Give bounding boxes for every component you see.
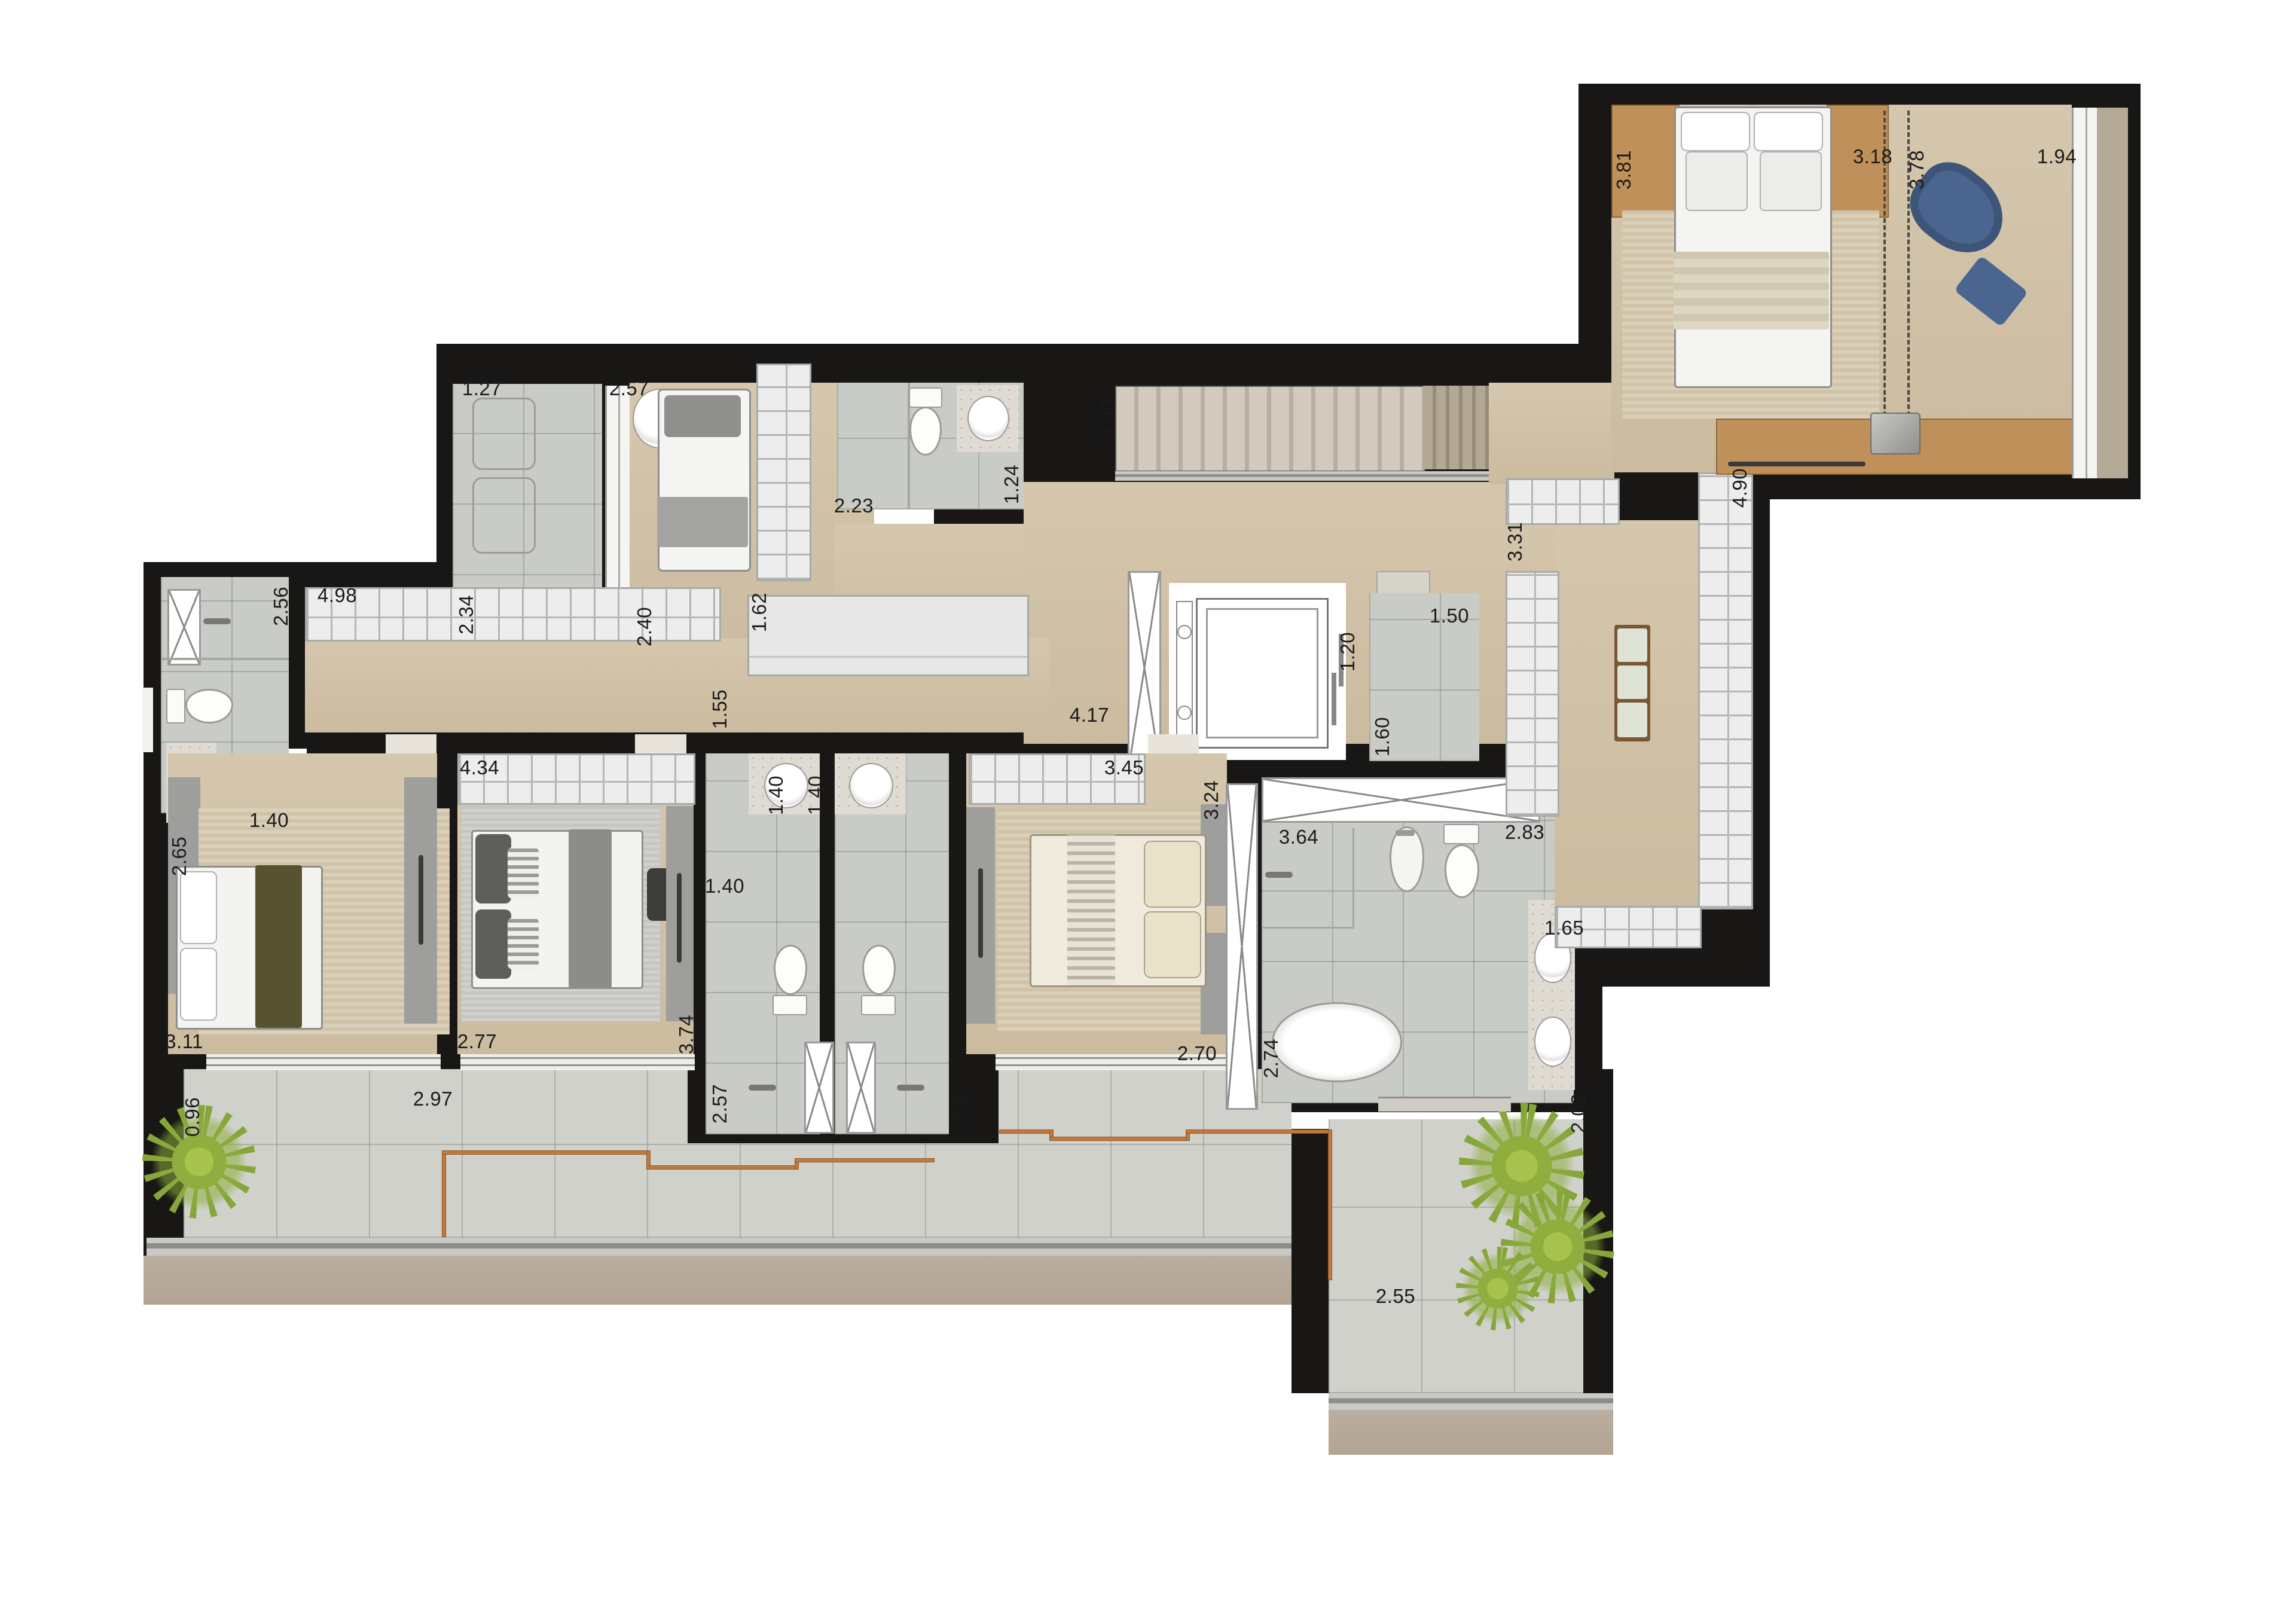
dimension-label: 4.90 (1729, 468, 1751, 508)
dimension-label: 2.02 (1567, 1094, 1590, 1133)
dimension-label: 1.62 (748, 593, 771, 632)
dimension-label: 2.57 (949, 1084, 972, 1124)
dimension-label: 2.65 (168, 837, 191, 876)
dimension-label: 1.50 (1430, 605, 1469, 627)
dimension-label: 2.57 (709, 1084, 731, 1124)
dimension-label: 4.98 (317, 584, 357, 607)
dimension-label: 1.65 (1544, 917, 1584, 939)
dimension-label: 1.20 (1336, 632, 1359, 671)
dimension-label: 1.94 (2037, 145, 2077, 168)
dimension-label: 1.24 (1000, 465, 1023, 504)
dimension-label: 1.55 (709, 689, 731, 729)
dimension-label: 3.64 (1279, 826, 1318, 848)
dimension-label: 2.23 (834, 494, 874, 517)
dimension-label: 1.27 (462, 377, 502, 400)
dimension-labels: 1.272.342.572.402.231.240.904.982.561.40… (0, 0, 2296, 1624)
dimension-label: 3.78 (1906, 150, 1928, 190)
dimension-label: 0.96 (181, 1097, 204, 1137)
dimension-label: 3.24 (1200, 780, 1223, 820)
dimension-label: 3.74 (675, 1015, 698, 1054)
dimension-label: 1.40 (705, 875, 744, 898)
floor-plan: 1.272.342.572.402.231.240.904.982.561.40… (0, 0, 2296, 1624)
dimension-label: 2.83 (1505, 821, 1544, 844)
dimension-label: 1.40 (804, 776, 827, 815)
dimension-label: 4.17 (1070, 704, 1109, 726)
dimension-label: 2.97 (413, 1088, 453, 1110)
dimension-label: 2.55 (1376, 1285, 1415, 1308)
dimension-label: 2.74 (1260, 1039, 1283, 1078)
dimension-label: 2.57 (609, 377, 649, 400)
dimension-label: 1.40 (765, 776, 787, 815)
dimension-label: 3.45 (1104, 756, 1144, 779)
dimension-label: 3.81 (1613, 150, 1635, 190)
dimension-label: 3.31 (1504, 522, 1526, 561)
dimension-label: 2.56 (270, 587, 292, 626)
dimension-label: 3.11 (165, 1030, 203, 1053)
dimension-label: 1.40 (249, 809, 289, 832)
dimension-label: 2.34 (455, 595, 478, 634)
dimension-label: 3.18 (1853, 145, 1892, 168)
dimension-label: 0.90 (1097, 400, 1120, 439)
dimension-label: 2.77 (457, 1030, 497, 1053)
dimension-label: 2.70 (1177, 1042, 1217, 1065)
dimension-label: 2.40 (633, 607, 656, 646)
dimension-label: 4.34 (460, 756, 499, 779)
dimension-label: 1.60 (1371, 717, 1394, 756)
